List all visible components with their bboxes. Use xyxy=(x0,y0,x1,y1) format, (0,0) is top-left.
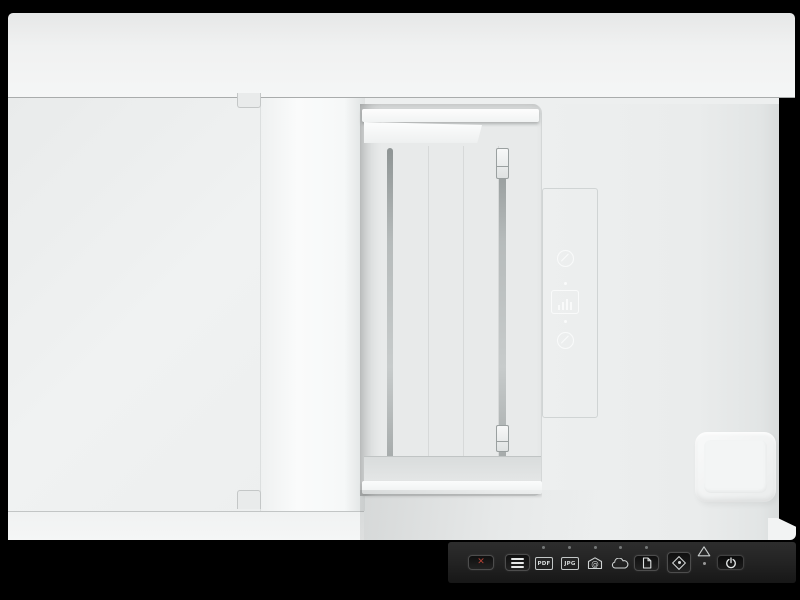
hinge-notch-top xyxy=(237,93,261,108)
scanner-lid-rear-bar xyxy=(8,13,795,98)
tray-seam xyxy=(463,146,464,458)
power-icon xyxy=(725,557,737,569)
jpg-label: JPG xyxy=(564,561,575,567)
control-panel: ✕ PDF JPG @ xyxy=(448,542,796,583)
scanner-body xyxy=(8,98,779,540)
error-led xyxy=(703,562,706,565)
pdf-label: PDF xyxy=(538,561,551,567)
email-led xyxy=(594,546,597,549)
base-corner xyxy=(768,518,796,540)
guide-rail-slot-left xyxy=(387,148,393,461)
scanner-product-photo: ✕ PDF JPG @ xyxy=(0,0,800,600)
lid-handle-recess[interactable] xyxy=(695,432,776,502)
paper-feed-button[interactable] xyxy=(505,554,530,571)
guide-rail-slot-right xyxy=(499,148,506,461)
guide-slider-top[interactable] xyxy=(496,148,509,179)
media-care-icon xyxy=(557,332,574,349)
lid-front-edge xyxy=(8,511,364,540)
feed-lines-icon xyxy=(511,562,524,564)
start-dot xyxy=(678,561,681,564)
load-original-icon xyxy=(551,290,579,314)
cancel-x-icon: ✕ xyxy=(477,558,485,567)
pdf-led xyxy=(542,546,545,549)
svg-text:@: @ xyxy=(591,559,599,568)
marking-dot xyxy=(564,320,567,323)
paper-guide-top[interactable] xyxy=(364,122,482,143)
hinge-notch-bottom xyxy=(237,490,261,509)
jpg-led xyxy=(568,546,571,549)
cancel-button[interactable]: ✕ xyxy=(468,555,494,570)
adf-input-tray xyxy=(360,104,542,496)
flatbed-lid xyxy=(8,98,260,511)
file-led xyxy=(645,546,648,549)
guide-slider-bottom[interactable] xyxy=(496,425,509,452)
scan-to-cloud-icon[interactable] xyxy=(611,558,630,569)
scan-to-pdf-icon[interactable]: PDF xyxy=(535,557,553,570)
warning-triangle-icon xyxy=(697,545,711,557)
marking-dot xyxy=(564,282,567,285)
file-icon xyxy=(642,557,652,569)
paper-guide-bottom[interactable] xyxy=(364,456,541,481)
tray-seam xyxy=(428,146,429,458)
paper-guide-top-rail[interactable] xyxy=(362,109,539,122)
lid-handle-inner xyxy=(704,440,767,493)
start-scan-button[interactable] xyxy=(667,552,691,573)
adf-cover xyxy=(260,98,365,511)
power-button[interactable] xyxy=(717,555,744,570)
scan-to-jpg-icon[interactable]: JPG xyxy=(561,557,579,570)
scan-to-email-icon[interactable]: @ xyxy=(586,556,604,570)
cloud-led xyxy=(619,546,622,549)
scan-to-file-button[interactable] xyxy=(634,555,659,571)
no-staples-icon xyxy=(557,250,574,267)
